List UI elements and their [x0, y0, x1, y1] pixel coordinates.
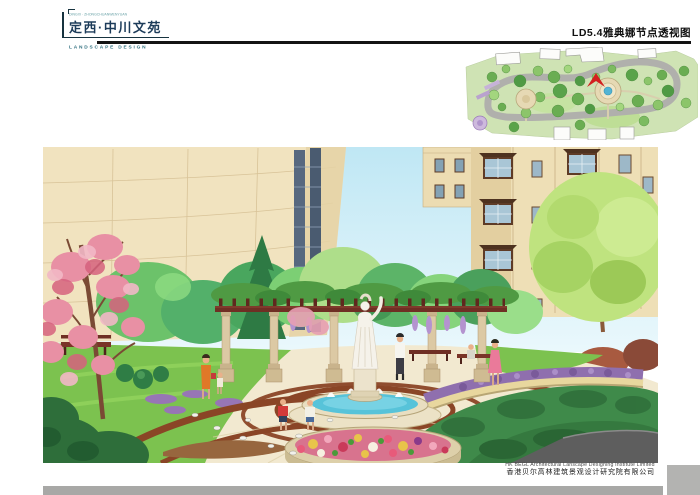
master-plan-inset — [462, 47, 698, 140]
company-block: HK BEGL Architectural Lanscape Designing… — [397, 462, 655, 480]
footer-corner-block — [667, 465, 700, 495]
company-name-en: HK BEGL Architectural Lanscape Designing… — [506, 462, 655, 467]
project-logo: DINGXI · ZHONGCHUANWENYUAN 定西·中川文苑 — [62, 12, 169, 38]
logo-tagline: DINGXI · ZHONGCHUANWENYUAN — [69, 13, 169, 17]
presentation-board: DINGXI · ZHONGCHUANWENYUAN 定西·中川文苑 LANDS… — [0, 0, 700, 495]
perspective-rendering — [43, 147, 658, 463]
project-title: 定西·中川文苑 — [69, 20, 169, 35]
logo-subtitle: LANDSCAPE DESIGN — [69, 45, 147, 50]
footer-bar — [43, 486, 663, 495]
company-name-cn: 香港贝尔高林建筑景观设计研究院有限公司 — [507, 469, 655, 476]
sheet-title: LD5.4雅典娜节点透视图 — [572, 25, 691, 43]
